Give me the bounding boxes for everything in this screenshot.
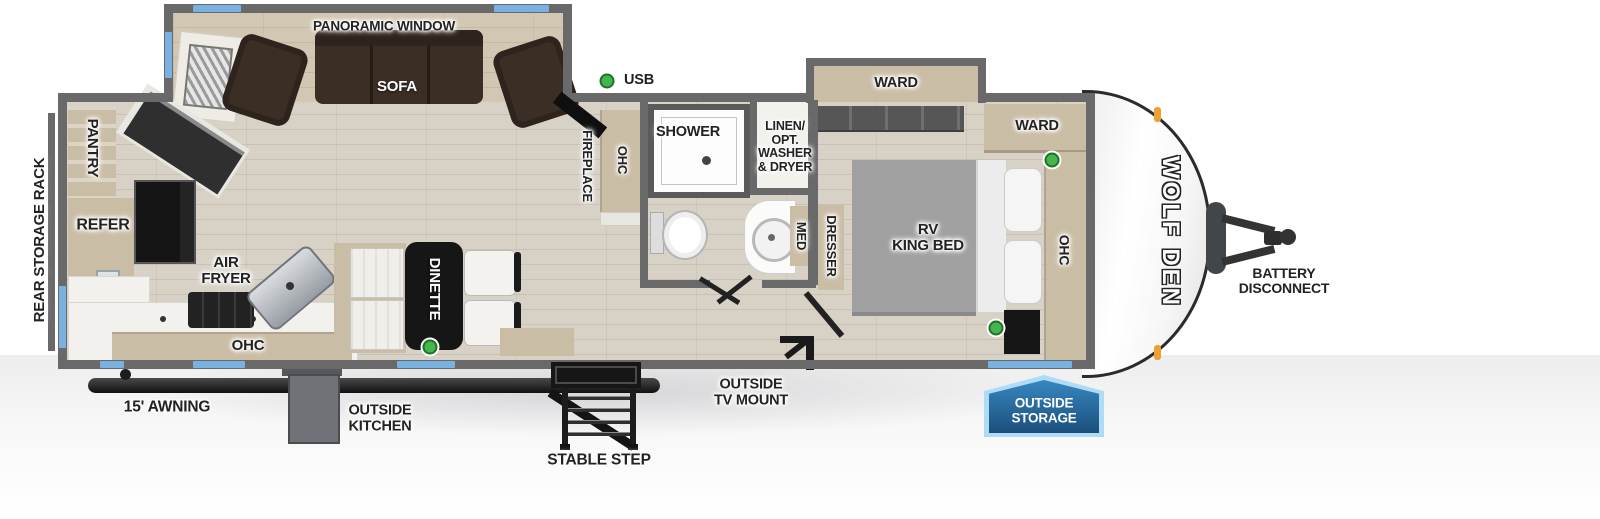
awning-label: 15' AWNING bbox=[124, 400, 210, 417]
dinette-label: DINETTE bbox=[426, 258, 442, 321]
outside-tv-mount-label: OUTSIDE TV MOUNT bbox=[714, 377, 788, 408]
panoramic-window-label: PANORAMIC WINDOW bbox=[313, 20, 455, 35]
ward-corner-label: WARD bbox=[1015, 119, 1059, 135]
bedroom-bottom-window bbox=[988, 361, 1072, 368]
dinette-chair-1-back bbox=[514, 252, 521, 292]
step-rung-3 bbox=[568, 420, 630, 424]
ward-slide-left-wall bbox=[806, 58, 814, 103]
shower-linen-divider-wall bbox=[750, 100, 757, 192]
usb-indicator-bed-foot bbox=[989, 321, 1004, 336]
dinette-bench-corner bbox=[500, 328, 574, 356]
outside-kitchen-box bbox=[288, 374, 340, 444]
step-rung-2 bbox=[568, 408, 630, 412]
aframe-bar-lower bbox=[1221, 245, 1275, 266]
linen-label: LINEN/ OPT. WASHER & DRYER bbox=[758, 120, 812, 174]
bed-pillow-2 bbox=[1004, 240, 1042, 304]
bedroom-tv-cabinet bbox=[1004, 310, 1040, 354]
bottom-window-1 bbox=[100, 361, 124, 368]
refer-label: REFER bbox=[76, 216, 129, 233]
stove-icon bbox=[188, 292, 254, 328]
brand-logo: WOLF DEN bbox=[1157, 156, 1183, 308]
rear-storage-rack-bar bbox=[48, 113, 55, 351]
outside-kitchen-label: OUTSIDE KITCHEN bbox=[348, 403, 411, 434]
usb-indicator-bed-head bbox=[1045, 153, 1060, 168]
fireplace-label: FIREPLACE bbox=[580, 130, 594, 202]
step-rung-1 bbox=[568, 396, 630, 400]
step-rail-right bbox=[630, 386, 636, 444]
shower-label: SHOWER bbox=[656, 125, 720, 141]
rear-storage-rack-label: REAR STORAGE RACK bbox=[32, 158, 48, 323]
bedroom-ohc-label: OHC bbox=[1056, 235, 1071, 266]
outside-storage-label: OUTSIDE STORAGE bbox=[1011, 396, 1076, 425]
kitchen-ohc-label: OHC bbox=[232, 338, 265, 354]
clearance-light-top-icon bbox=[1154, 107, 1161, 122]
bottom-window-3 bbox=[397, 361, 455, 368]
usb-indicator-living bbox=[600, 74, 615, 89]
linen-bottom-wall bbox=[750, 188, 816, 195]
front-cap bbox=[1082, 90, 1211, 378]
awning-end-knob bbox=[120, 369, 131, 380]
bed-pillow-1 bbox=[1004, 168, 1042, 232]
bath-left-wall bbox=[640, 100, 648, 288]
step-foot-left bbox=[560, 444, 570, 450]
refrigerator bbox=[134, 180, 196, 264]
pantry-label: PANTRY bbox=[84, 119, 100, 178]
top-wall-rear-segment bbox=[58, 93, 173, 102]
dinette-chair-1 bbox=[464, 250, 516, 296]
slide-left-window bbox=[165, 32, 172, 78]
step-foot-right bbox=[628, 444, 638, 450]
entry-step-platform bbox=[551, 362, 641, 388]
sofa-seam-1 bbox=[370, 46, 373, 104]
ward-slide-right-wall bbox=[978, 58, 986, 103]
shower-drain-icon bbox=[702, 156, 711, 165]
usb-indicator-dinette bbox=[423, 340, 438, 355]
left-wall-window bbox=[59, 286, 66, 348]
usb-label: USB bbox=[624, 73, 654, 89]
sofa-seam-2 bbox=[427, 46, 430, 104]
floorplan-canvas: WOLF DEN BATTERY DISCONNECT REAR STORAGE… bbox=[0, 0, 1600, 519]
dinette-cushion-2 bbox=[350, 300, 404, 350]
bed-label: RV KING BED bbox=[892, 222, 964, 254]
bottom-window-2 bbox=[193, 361, 245, 368]
top-wall-front-segment bbox=[978, 93, 1095, 102]
ward-slide-label: WARD bbox=[874, 76, 918, 92]
clearance-light-bottom-icon bbox=[1154, 345, 1161, 360]
entertainment-ohc-label: OHC bbox=[615, 146, 629, 174]
air-fryer-knob bbox=[286, 282, 294, 290]
step-rung-4 bbox=[568, 432, 630, 436]
toilet-icon bbox=[662, 210, 708, 260]
ward-slide-top-wall bbox=[806, 58, 986, 66]
slide-top-window-1 bbox=[193, 5, 241, 12]
bed-sheet bbox=[976, 160, 1006, 312]
kitchen-faucet-1 bbox=[160, 316, 166, 322]
hitch-ball-knob bbox=[1280, 229, 1296, 245]
sofa-label: SOFA bbox=[377, 79, 417, 95]
air-fryer-label: AIR FRYER bbox=[201, 255, 250, 287]
slide-top-window-2 bbox=[494, 5, 549, 12]
stable-step-label: STABLE STEP bbox=[547, 453, 650, 470]
bedroom-window-grid bbox=[816, 106, 964, 132]
sofa-slide-right-wall bbox=[563, 4, 572, 102]
dresser-label: DRESSER bbox=[824, 215, 838, 276]
shower-stall bbox=[648, 104, 750, 198]
med-label: MED bbox=[794, 222, 808, 250]
bath-sink-drain bbox=[768, 234, 775, 241]
battery-disconnect-label: BATTERY DISCONNECT bbox=[1239, 266, 1330, 296]
top-wall-mid-segment bbox=[566, 93, 814, 102]
dinette-cushion-1 bbox=[350, 248, 404, 298]
front-wall bbox=[1086, 93, 1095, 369]
